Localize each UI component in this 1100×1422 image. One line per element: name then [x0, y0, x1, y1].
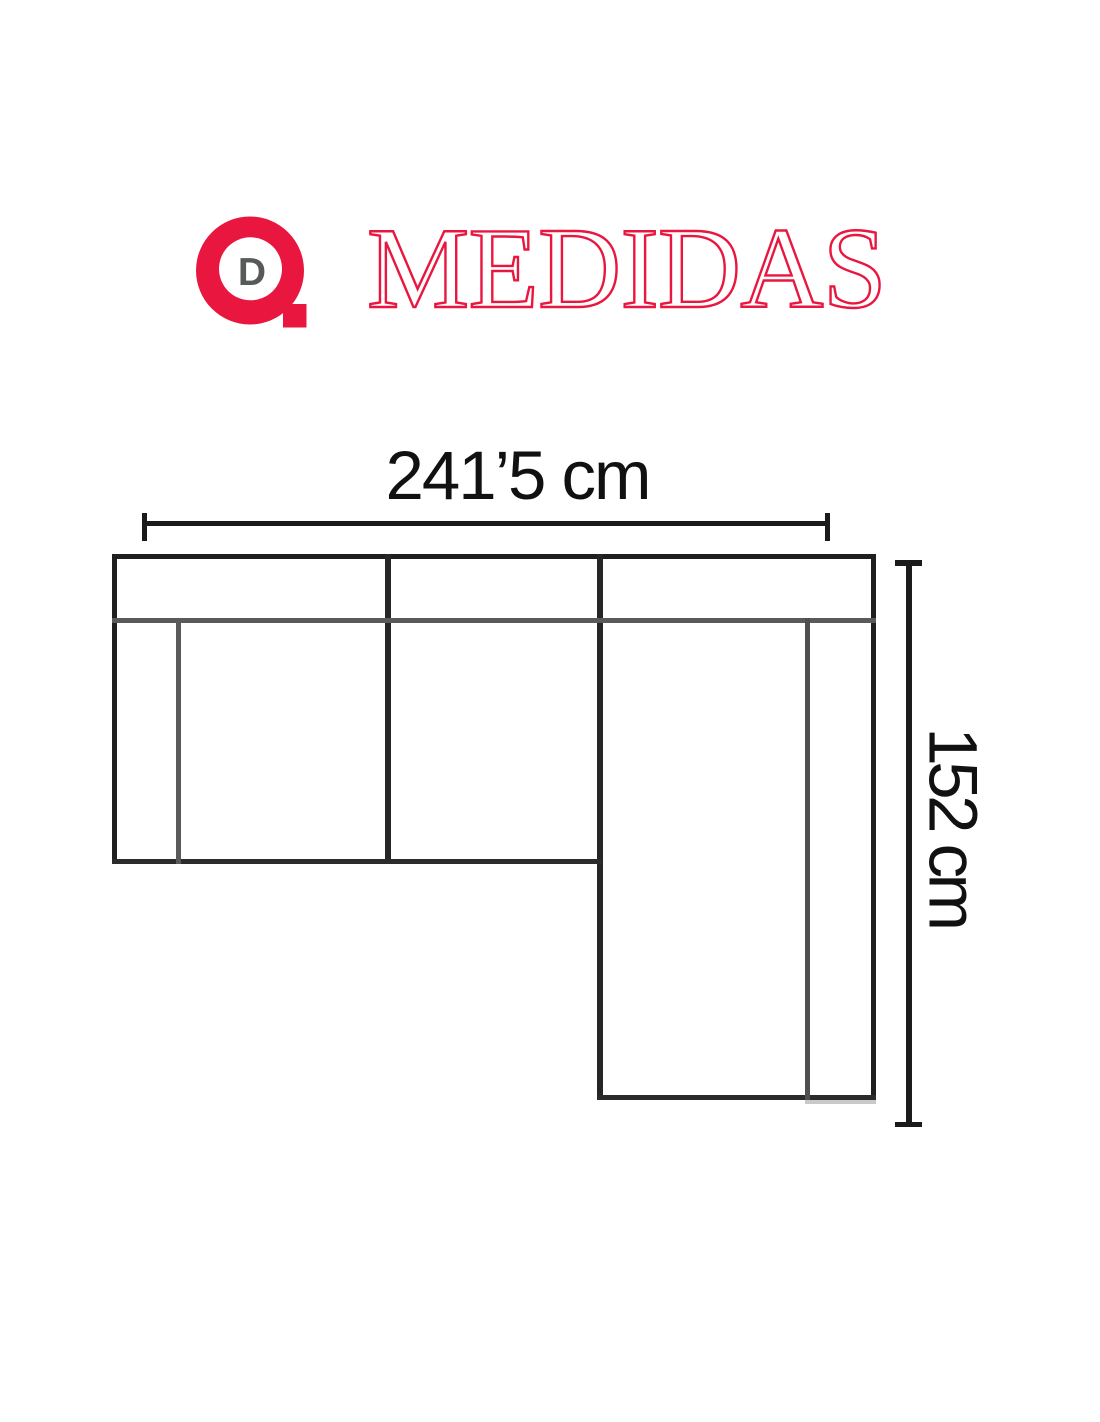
svg-text:D: D [238, 251, 266, 294]
